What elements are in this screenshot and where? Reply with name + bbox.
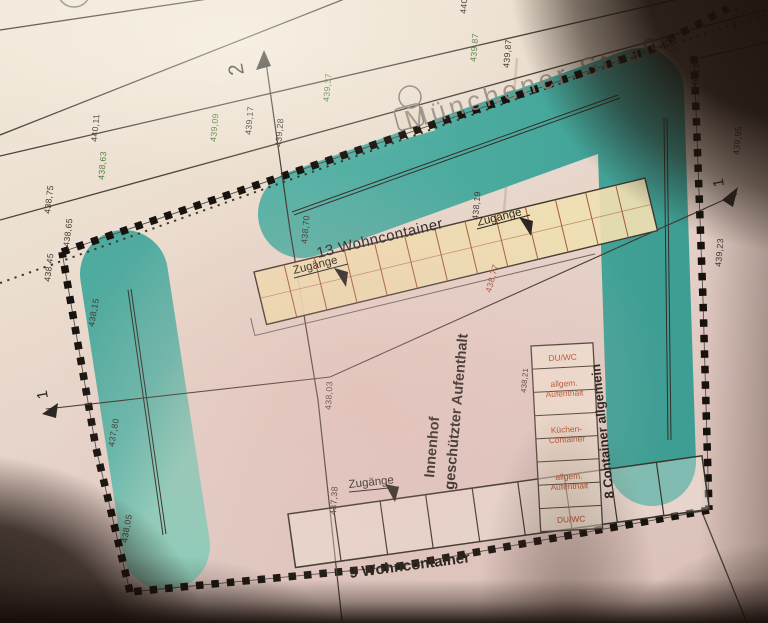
elevation-label: 438,65 [61,218,74,248]
elevation-label: 439,23 [713,238,725,267]
elevation-label: 440,11 [89,113,101,142]
section-marker-2: 2 [224,62,249,78]
column-cell-label: Container [549,433,586,445]
courtyard-label-line2: geschützter Aufenthalt [442,333,472,491]
column-cell-label: DU/WC [557,513,586,524]
elevation-label: 438,21 [519,367,530,393]
elevation-label: 439,87 [468,33,480,62]
column-cell-label: Aufenthalt [550,480,589,492]
elevation-label: 437,38 [328,486,339,515]
site-plan-photo: 2 1 1 13 Wohncontainer Zugänge Zugänge [0,0,768,623]
manhole-symbol [59,0,89,7]
elevation-label: 439,09 [208,113,220,142]
section-marker-1-right: 1 [710,177,728,188]
elevation-label: 439,17 [243,106,255,135]
section-2-arrowhead [256,50,271,70]
container-row-bottom [288,456,709,568]
column-cell-label: DU/WC [548,352,577,363]
elevation-label: 440,4 [729,6,741,30]
elevation-label: 438,75 [42,185,55,215]
section-1-arrowhead-left [42,403,58,418]
elevation-label: 439,87 [501,39,513,68]
section-1-arrowhead-right [722,187,738,207]
elevation-label: 440,12 [689,63,701,92]
section-marker-1-left: 1 [34,389,52,400]
access-bottom: Zugänge [348,474,399,502]
elevation-label: 438,45 [42,253,55,283]
column-cell-label: Aufenthalt [545,387,584,399]
elevation-label: 438,03 [323,381,334,410]
elevation-label: 439,28 [273,118,285,147]
elevation-label: 439,95 [731,126,743,155]
site-plan-drawing: 2 1 1 13 Wohncontainer Zugänge Zugänge [0,0,768,623]
elevation-label: 438,63 [96,151,108,180]
elevation-label: 440 [458,0,469,14]
elevation-label: 439,37 [321,73,333,102]
courtyard-label-line1: Innenhof [422,416,443,479]
